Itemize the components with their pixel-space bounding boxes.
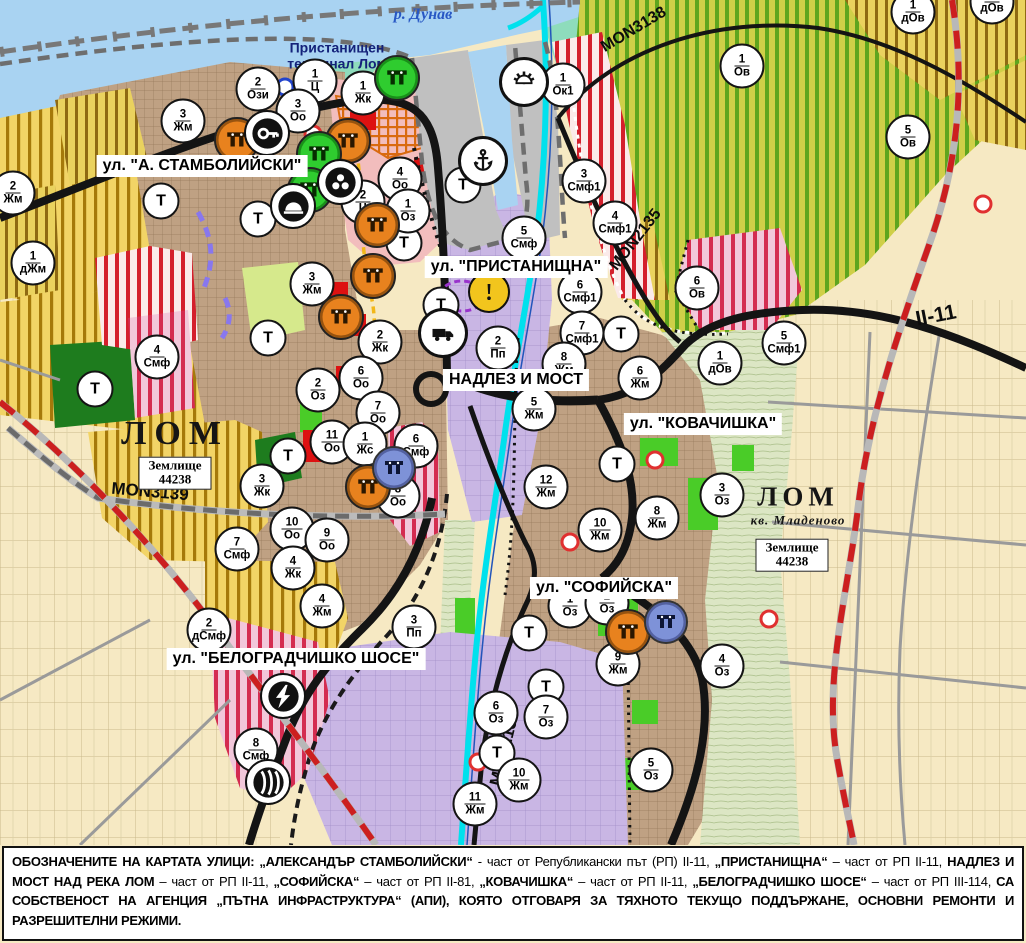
group-icon <box>317 159 363 205</box>
truck-icon <box>418 308 468 358</box>
zone-marker: 11Жм <box>453 782 498 827</box>
zone-marker: 2Пп <box>476 326 521 371</box>
land-parcel-box: Землище44238 <box>755 539 828 572</box>
map-footnote: ОБОЗНАЧЕНИТЕ НА КАРТАТА УЛИЦИ: „АЛЕКСАНД… <box>2 846 1024 941</box>
street-label: ул. "БЕЛОГРАДЧИШКО ШОСЕ" <box>167 648 426 670</box>
zone-marker: 6Оз <box>474 691 519 736</box>
zone-marker: 4Жк <box>271 546 316 591</box>
city-label: ЛОМ <box>121 415 229 453</box>
zone-marker: 4Смф <box>135 335 180 380</box>
street-label: ул. "КОВАЧИШКА" <box>624 413 782 435</box>
zone-marker: 1Ов <box>720 44 765 89</box>
poi-ring-marker <box>646 451 665 470</box>
transformer-marker: Т <box>143 183 180 220</box>
zone-marker: 2Ози <box>236 67 281 112</box>
zone-marker: 12Жм <box>524 465 569 510</box>
zone-marker: 1дЖм <box>11 241 56 286</box>
transformer-marker: Т <box>77 371 114 408</box>
zone-marker: 2Оз <box>296 368 341 413</box>
land-parcel-box: Землище44238 <box>138 457 211 490</box>
zone-marker: 10Жм <box>497 758 542 803</box>
street-label: ул. "ПРИСТАНИЩНА" <box>425 256 608 278</box>
zone-marker: 4Оз <box>700 644 745 689</box>
zone-marker: 1дОв <box>698 341 743 386</box>
anchor-icon <box>458 136 508 186</box>
zone-marker: 3Жм <box>161 99 206 144</box>
zone-marker: 5Смф <box>502 216 547 261</box>
monument-icon <box>350 253 396 299</box>
lightning-icon <box>260 673 306 719</box>
street-label: НАДЛЕЗ И МОСТ <box>443 369 589 391</box>
zone-marker: 3Жк <box>240 464 285 509</box>
zone-marker: 3Смф1 <box>562 159 607 204</box>
zone-marker: 7Оз <box>524 695 569 740</box>
zone-marker: 8Жм <box>635 496 680 541</box>
zone-marker: 5Ов <box>886 115 931 160</box>
poi-ring-marker <box>974 195 993 214</box>
zone-marker: 3Оз <box>700 473 745 518</box>
zone-marker: 10Жм <box>578 508 623 553</box>
zoning-map: ул. "А. СТАМБОЛИЙСКИ"ул. "ПРИСТАНИЩНА"НА… <box>0 0 1026 943</box>
zone-marker: 6Жм <box>618 356 663 401</box>
monument-icon <box>372 446 416 490</box>
zone-marker: 5Жм <box>512 387 557 432</box>
transformer-marker: Т <box>250 320 287 357</box>
monument-icon <box>318 294 364 340</box>
transformer-marker: Т <box>599 446 636 483</box>
key-icon <box>244 110 290 156</box>
monument-icon <box>644 600 688 644</box>
railstation-icon <box>245 759 291 805</box>
transformer-marker: Т <box>603 316 640 353</box>
monument-icon <box>374 55 420 101</box>
poi-ring-marker <box>561 533 580 552</box>
zone-marker: 2дСмф <box>187 608 232 653</box>
city-label: ЛОМкв. Младеново <box>751 482 846 529</box>
poi-ring-marker <box>760 610 779 629</box>
monument-icon <box>354 202 400 248</box>
zone-marker: 5Оз <box>629 748 674 793</box>
zone-marker: 3Пп <box>392 605 437 650</box>
zone-marker: 5Смф1 <box>762 321 807 366</box>
street-label: ул. "А. СТАМБОЛИЙСКИ" <box>97 155 308 177</box>
zone-marker: 6Ов <box>675 266 720 311</box>
transformer-marker: Т <box>511 615 548 652</box>
river-danube-label: р. Дунав <box>394 6 452 24</box>
sun-icon <box>499 57 549 107</box>
street-label: ул. "СОФИЙСКА" <box>530 577 678 599</box>
zone-marker: 4Смф1 <box>593 201 638 246</box>
zone-marker: 4Жм <box>300 584 345 629</box>
tunnel-icon <box>270 183 316 229</box>
zone-marker: 7Смф <box>215 527 260 572</box>
